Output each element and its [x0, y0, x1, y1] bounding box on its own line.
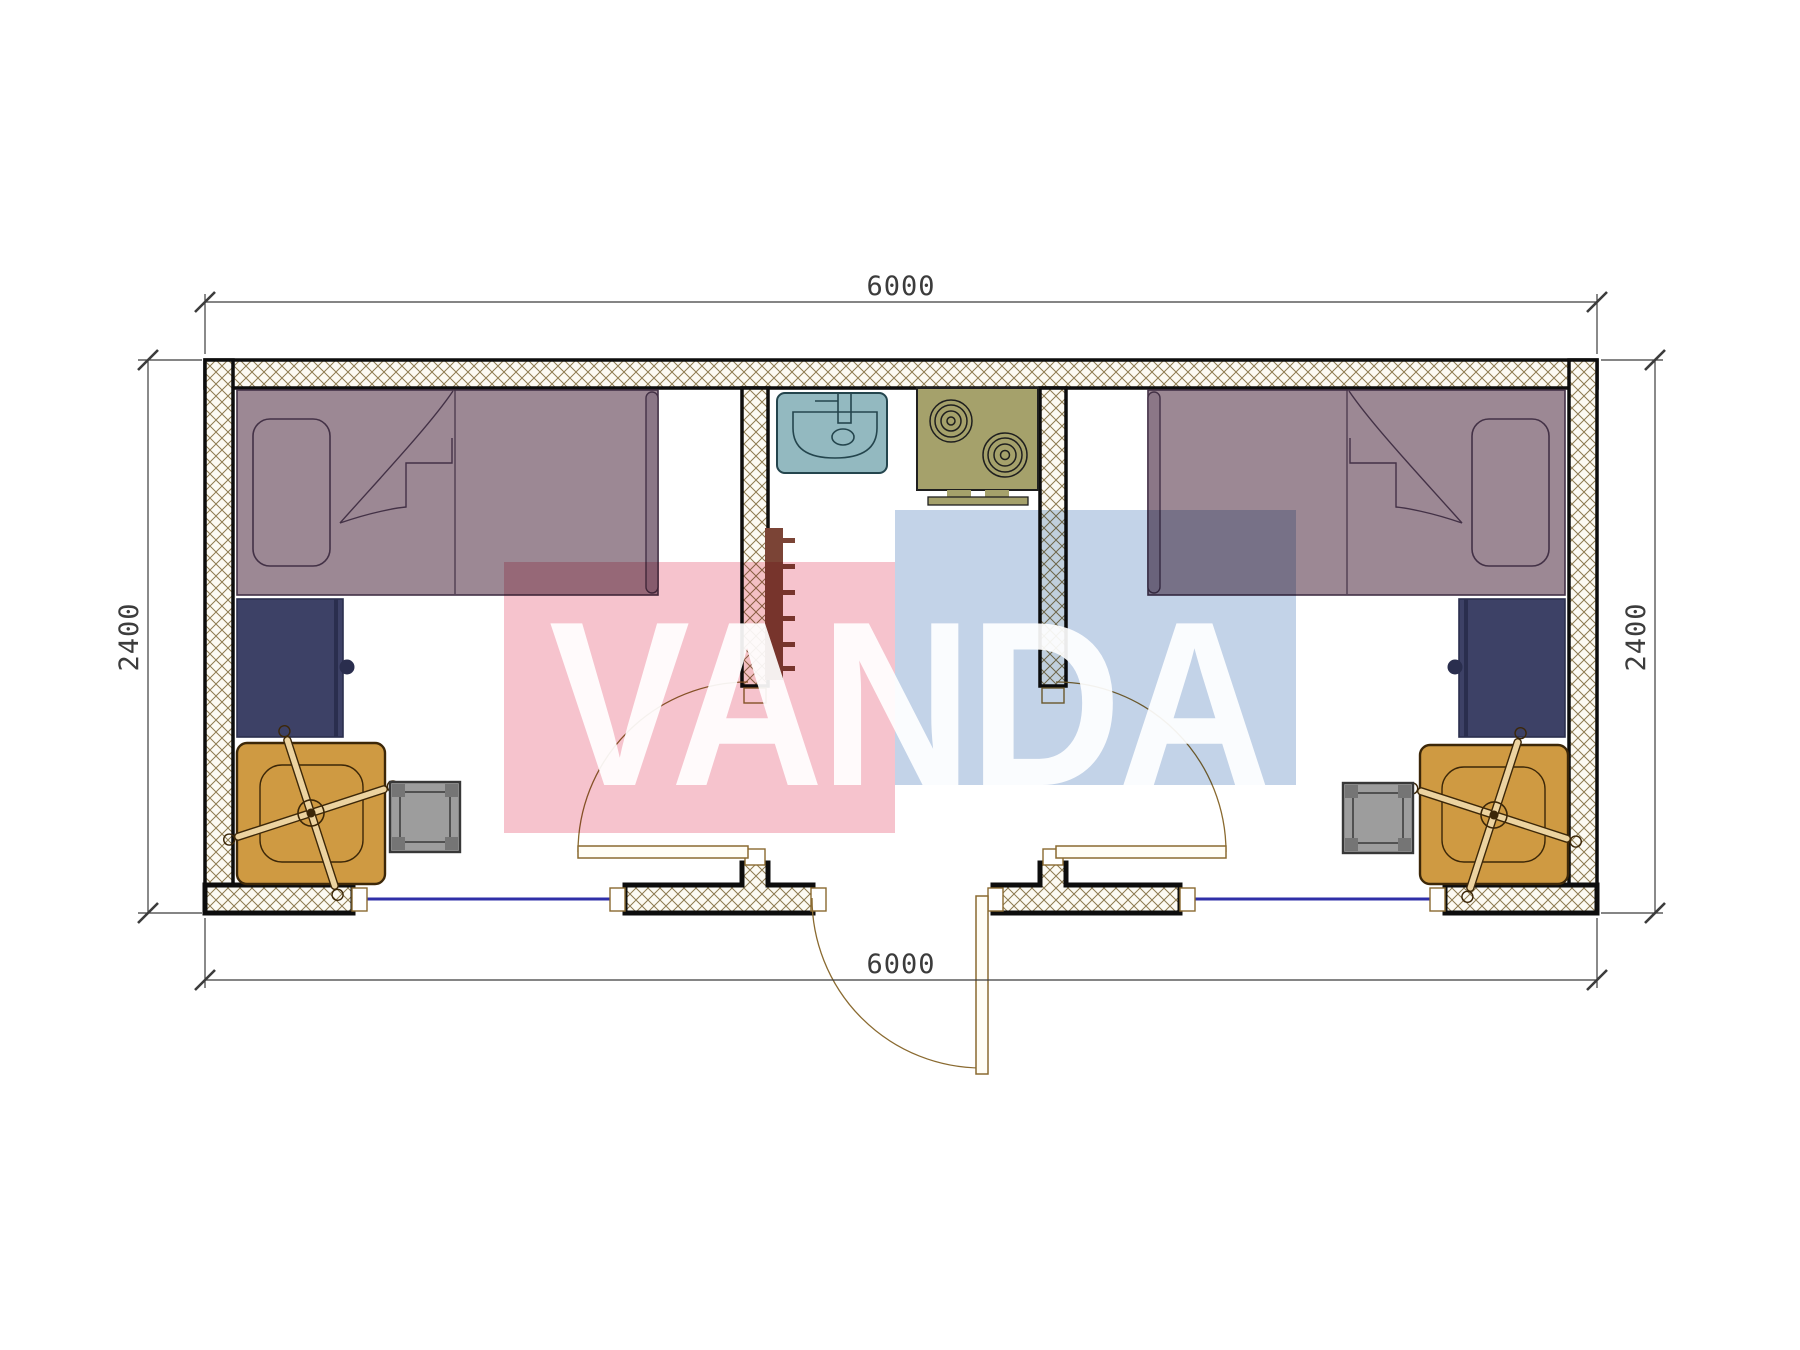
stool-right [1343, 783, 1413, 853]
desk-knob [1448, 660, 1463, 675]
radiator-fin [783, 538, 795, 543]
desk-right [1448, 599, 1566, 737]
floor-plan-page: 6000 6000 2400 2400 VANDA [0, 0, 1800, 1350]
window-jamb [1430, 888, 1445, 911]
stool-post [392, 837, 405, 850]
dim-label-top: 6000 [866, 271, 935, 302]
door-leaf [1056, 846, 1226, 858]
stool-post [445, 784, 458, 797]
door-jamb [811, 888, 826, 911]
dim-label-right: 2400 [1621, 602, 1652, 671]
wall-top [205, 360, 1597, 388]
desk-knob [340, 660, 355, 675]
stool-post [1345, 785, 1358, 798]
dim-label-bottom: 6000 [866, 949, 935, 980]
stool-post [392, 784, 405, 797]
stool-post [1398, 838, 1411, 851]
door-leaf [578, 846, 748, 858]
stove-handle-bar [928, 497, 1028, 505]
door-jamb [988, 888, 1003, 911]
wall-bottom-left-segment [205, 885, 353, 913]
door-leaf [976, 896, 988, 1074]
stool-left [390, 782, 460, 852]
window-jamb [1180, 888, 1195, 911]
stool-post [1398, 785, 1411, 798]
desk-top [237, 599, 343, 737]
stove-foot [985, 490, 1009, 497]
wall-right [1569, 360, 1597, 913]
desk-left [237, 599, 355, 737]
sink [777, 393, 887, 473]
stove-foot [947, 490, 971, 497]
stool-post [1345, 838, 1358, 851]
wall-left [205, 360, 233, 913]
window-jamb [610, 888, 625, 911]
stool-post [445, 837, 458, 850]
window-jamb [352, 888, 367, 911]
dim-label-left: 2400 [114, 602, 145, 671]
watermark-text: VANDA [549, 574, 1267, 836]
two-burner-stove [917, 388, 1038, 505]
floor-plan-canvas: 6000 6000 2400 2400 VANDA [0, 0, 1800, 1350]
desk-top [1459, 599, 1565, 737]
